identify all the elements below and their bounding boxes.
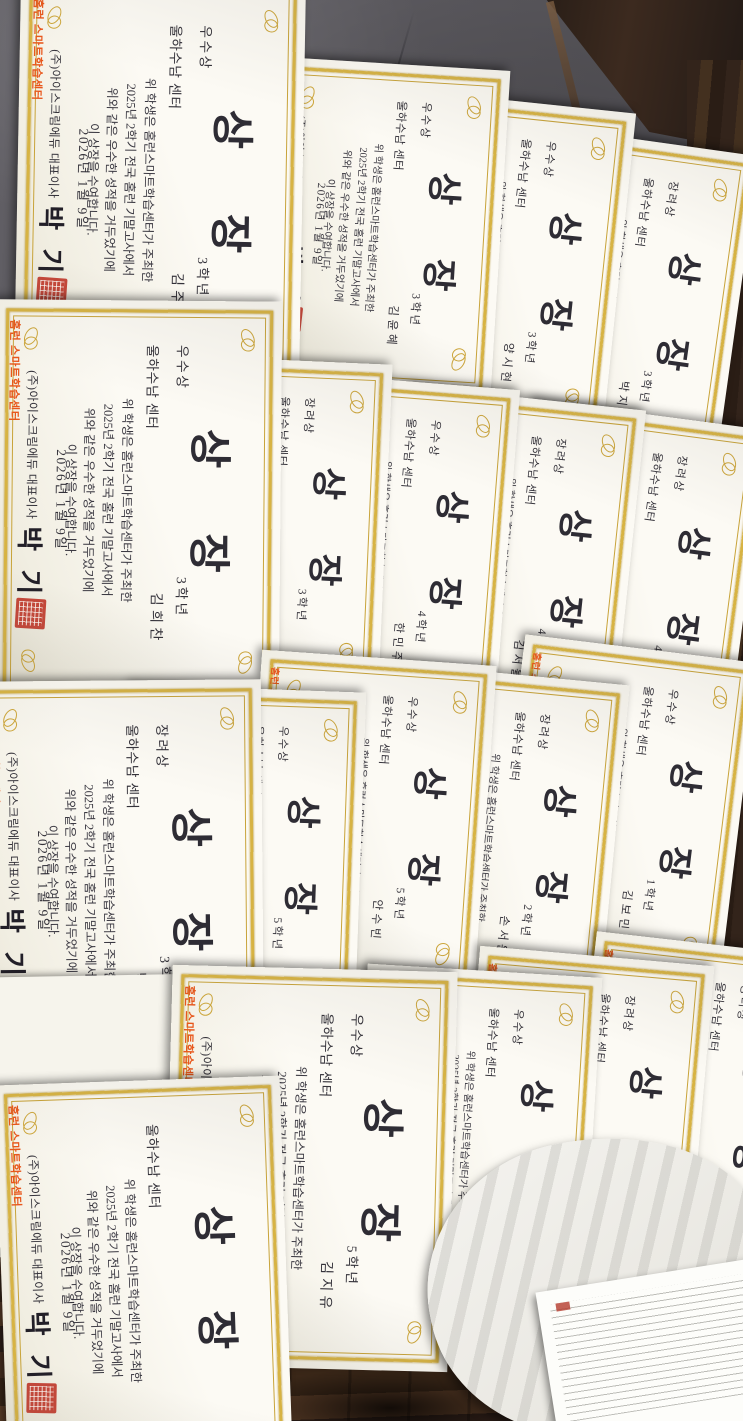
title-char-sang: 상	[669, 523, 724, 563]
award-type-label: 우수상	[347, 1013, 368, 1059]
center-name-label: 울하수남 센터	[123, 724, 144, 809]
student-grade: 2학년	[517, 903, 536, 939]
homerun-logo: 홈런 스마트학습센터	[180, 985, 199, 1088]
title-char-jang: 장	[181, 532, 243, 573]
award-type-label: 우수상	[403, 696, 422, 735]
issuer-title: (주)아이스크림에듀 대표이사	[23, 370, 41, 519]
title-char-jang: 장	[658, 609, 713, 649]
issuer-signature: 박 기	[19, 1310, 61, 1385]
student-grade: 5학년	[391, 887, 409, 922]
award-type-label: 우수상	[417, 101, 435, 140]
issuer-title: (주)아이스크림에듀 대표이사	[45, 49, 65, 198]
student-grade: 4학년	[412, 610, 431, 645]
award-type-label: 장려상	[153, 724, 173, 770]
center-name-label: 울하수남 센터	[143, 344, 164, 429]
title-char-jang: 장	[650, 843, 705, 882]
issue-date: 2026년 1월 9일	[50, 299, 72, 699]
award-type-label: 우수상	[173, 344, 193, 390]
title-char-sang: 상	[661, 757, 716, 796]
issuer-signature: 박 기	[0, 908, 34, 982]
title-char-sang: 상	[513, 1077, 566, 1113]
title-char-jang: 장	[189, 1308, 252, 1350]
title-char-jang: 장	[421, 574, 474, 611]
center-name-label: 울하수남 센터	[316, 1012, 338, 1098]
photo-scene: 상 장 우수상 울하수남 센터 3학년 김주혁 위 학생은 홈런스마트학습센터가…	[0, 0, 743, 1421]
homerun-logo: 홈런 스마트학습센터	[6, 319, 23, 421]
title-char-jang: 장	[724, 1138, 743, 1177]
title-char-sang: 상	[305, 466, 357, 501]
center-name-label: 울하수남 센터	[143, 1123, 166, 1209]
title-char-sang: 상	[551, 506, 605, 544]
student-name: 안수빈	[367, 898, 387, 942]
title-char-sang: 상	[659, 249, 714, 289]
title-char-jang: 장	[277, 881, 329, 916]
student-name: 김희찬	[147, 592, 167, 644]
title-char-sang: 상	[185, 1204, 248, 1246]
title-char-sang: 상	[182, 428, 244, 469]
award-type-label: 우수상	[196, 25, 217, 71]
student-name: 김윤혜	[383, 304, 403, 348]
award-certificate: 상 장 울하수남 센터 위 학생은 홈런스마트학습센터가 주최한 2025년 2…	[0, 1075, 293, 1421]
award-type-label: 장려상	[301, 397, 319, 435]
student-grade: 5학년	[342, 1245, 363, 1287]
award-type-label: 우수상	[426, 419, 445, 458]
award-type-label: 장려상	[619, 994, 638, 1033]
title-char-jang: 장	[542, 592, 596, 630]
title-char-sang: 상	[204, 108, 267, 149]
title-char-jang: 장	[532, 295, 586, 333]
student-grade: 3학년	[294, 588, 311, 623]
student-grade: 5학년	[269, 917, 286, 952]
homerun-logo: 홈런 스마트학습센터	[29, 0, 47, 100]
issuer-title: (주)아이스크림에듀 대표이사	[25, 1154, 47, 1304]
award-type-label: 우수상	[509, 1008, 527, 1047]
issuer-signature: 박 기	[11, 526, 51, 600]
title-char-jang: 장	[647, 334, 702, 374]
title-char-sang: 상	[535, 782, 589, 820]
student-name: 김지유	[316, 1260, 337, 1313]
title-char-jang: 장	[164, 911, 226, 952]
red-seal-stamp-icon	[26, 1382, 57, 1413]
award-type-label: 우수상	[275, 725, 292, 763]
student-grade: 3학년	[173, 576, 193, 617]
student-grade: 3학년	[194, 257, 215, 299]
title-char-sang: 상	[421, 170, 474, 206]
title-char-jang: 장	[352, 1201, 415, 1243]
title-char-sang: 상	[621, 1064, 675, 1102]
award-certificate: 상 장 우수상 울하수남 센터 3학년 김희찬 위 학생은 홈런스마트학습센터가…	[0, 299, 282, 701]
issuer-title: (주)아이스크림에듀 대표이사	[4, 752, 22, 901]
title-char-jang: 장	[301, 552, 353, 587]
student-grade: 3학년	[407, 292, 425, 327]
issuer-signature: 박 기	[32, 205, 72, 279]
red-seal-stamp-icon	[14, 597, 46, 629]
title-char-sang: 상	[541, 209, 595, 247]
title-char-jang: 장	[527, 868, 581, 906]
center-name-label: 울하수남 센터	[165, 24, 186, 110]
title-char-jang: 장	[400, 851, 453, 888]
title-char-sang: 상	[428, 488, 481, 525]
illegible-text-lines	[550, 1272, 743, 1421]
title-char-jang: 장	[202, 213, 265, 254]
title-char-sang: 상	[354, 1097, 417, 1139]
title-char-sang: 상	[406, 765, 459, 802]
title-char-jang: 장	[415, 257, 468, 293]
title-char-sang: 상	[163, 807, 225, 848]
title-char-sang: 상	[280, 794, 332, 829]
